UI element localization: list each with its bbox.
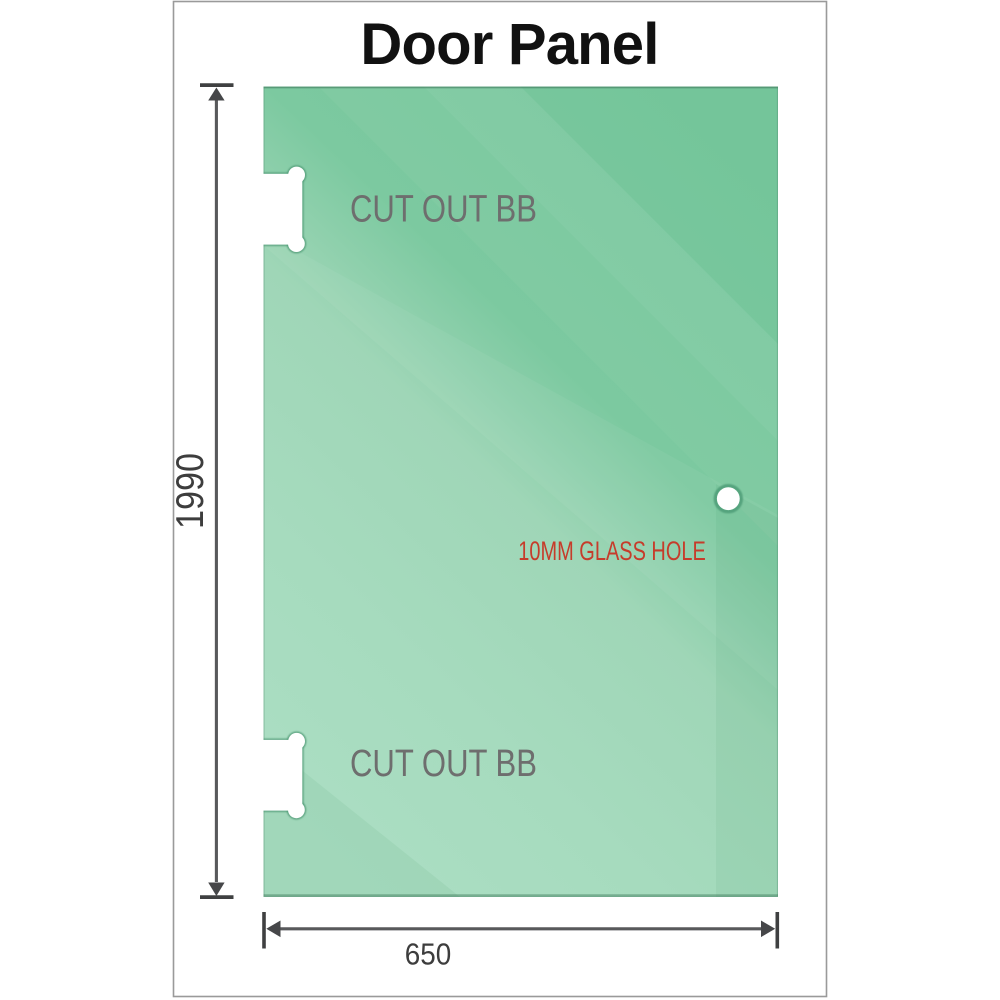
svg-text:CUT OUT BB: CUT OUT BB [350,743,537,785]
svg-text:650: 650 [405,938,452,972]
svg-text:CUT OUT BB: CUT OUT BB [350,189,537,231]
svg-text:Door Panel: Door Panel [360,12,658,77]
svg-text:1990: 1990 [169,453,212,529]
svg-text:10MM GLASS HOLE: 10MM GLASS HOLE [518,536,706,566]
